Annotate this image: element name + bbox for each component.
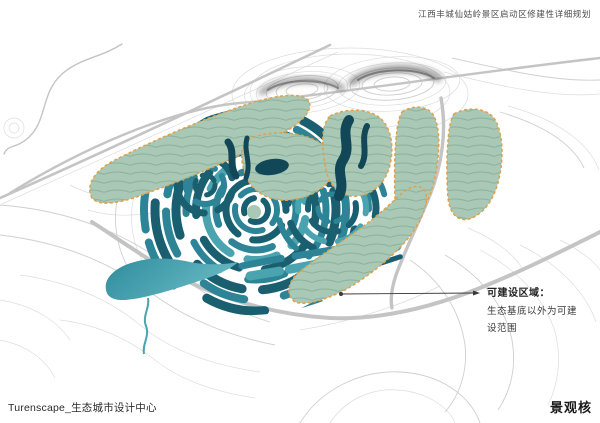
callout-text-line: 生态基底以外为可建	[487, 303, 599, 320]
sheet-title: 江西丰城仙姑岭景区启动区修建性详细规划	[418, 8, 591, 20]
sheet-label: 景观核	[550, 397, 592, 416]
buildable-area-callout: 可建设区域： 生态基底以外为可建 设范围	[487, 284, 599, 337]
callout-text-line: 设范围	[487, 320, 599, 337]
plan-sheet: 江西丰城仙姑岭景区启动区修建性详细规划 可建设区域： 生态基底以外为可建 设范围…	[0, 0, 600, 423]
studio-credit: Turenscape_生态城市设计中心	[8, 400, 157, 415]
callout-title: 可建设区域：	[487, 284, 599, 299]
site-plan-map	[0, 0, 600, 423]
